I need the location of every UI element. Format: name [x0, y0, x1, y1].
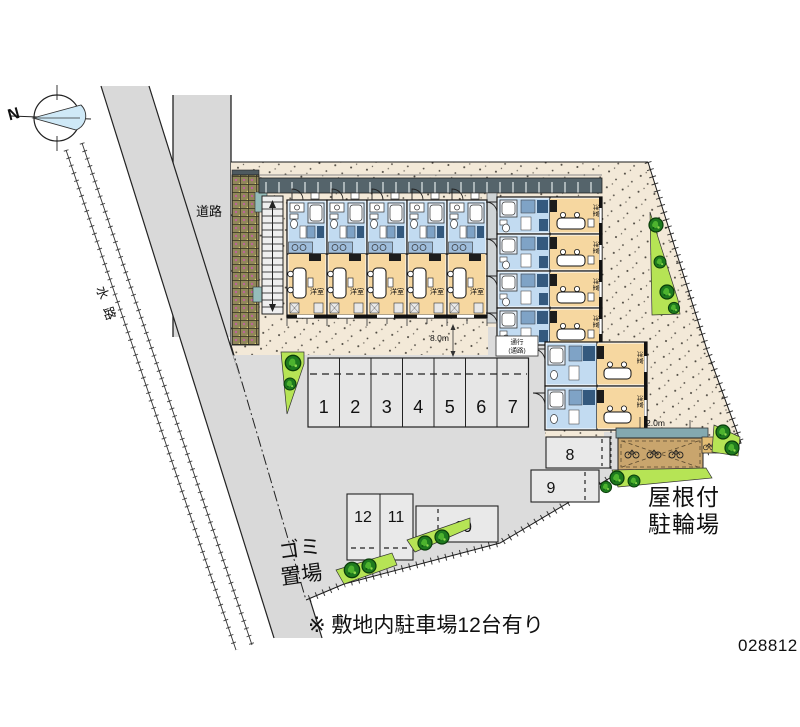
- tree-icon: [418, 536, 432, 550]
- tree-icon: [284, 378, 296, 390]
- parking-space-number: 6: [476, 397, 486, 417]
- parking-space-number: 12: [354, 509, 372, 526]
- parking-space-number: 8: [566, 447, 575, 464]
- apartment-unit: [486, 234, 602, 271]
- right-wing: 洋室 洋室 洋室 洋室: [486, 197, 602, 345]
- parking-space-number: 4: [413, 397, 423, 417]
- parking-spaces-11-12: 12 11: [347, 494, 413, 560]
- room-label: 洋室: [592, 278, 601, 292]
- bike-depth-dimension-label: 2.0m: [646, 418, 665, 428]
- parking-space-number: 3: [382, 397, 392, 417]
- parking-space-8: 8: [546, 437, 610, 468]
- room-label: 洋室: [310, 287, 324, 296]
- tree-icon: [716, 425, 730, 439]
- parking-space-number: 7: [508, 397, 518, 417]
- room-label: 洋室: [592, 241, 601, 255]
- room-label: 洋室: [592, 204, 601, 218]
- north-compass: N: [6, 85, 91, 151]
- parking-space-number: 5: [445, 397, 455, 417]
- south-wing: 洋室 洋室: [533, 342, 647, 430]
- site-plan-page: 道路 水路: [0, 0, 800, 727]
- waterway-label: 水路: [93, 284, 122, 331]
- tree-icon: [649, 218, 663, 232]
- room-label: 洋室: [636, 351, 645, 365]
- room-label: 洋室: [430, 287, 444, 296]
- tree-icon: [668, 302, 679, 313]
- apartment-unit: [486, 271, 602, 308]
- tree-icon: [362, 559, 376, 573]
- bike-shelter-label-line1: 屋根付: [648, 484, 720, 510]
- room-label: 洋室: [390, 287, 404, 296]
- apartment-unit: [447, 189, 487, 318]
- room-label: 洋室: [592, 315, 601, 329]
- left-wing: 洋室 洋室 洋室 洋室 洋室: [287, 189, 487, 326]
- tree-icon: [725, 441, 739, 455]
- parking-row: 1 2 3 4 5 6 7: [308, 358, 529, 427]
- site-note: ※ 敷地内駐車場12台有り: [308, 614, 544, 637]
- tree-icon: [600, 481, 611, 492]
- apartment-unit: [367, 189, 407, 318]
- north-corridor: [259, 178, 602, 193]
- apartment-unit: [486, 197, 602, 234]
- site-plan-drawing: 道路 水路: [0, 0, 800, 727]
- walkway-sign-line1: 通行: [511, 337, 525, 346]
- tree-icon: [660, 285, 674, 299]
- parking-space-number: 1: [319, 397, 329, 417]
- frontage-dimension-label: 8.0m: [430, 333, 449, 343]
- parking-space-number: 9: [547, 480, 556, 497]
- tree-icon: [285, 355, 300, 370]
- apartment-unit: [287, 189, 327, 318]
- bike-shelter-label-line2: 駐輪場: [648, 511, 720, 537]
- tree-icon: [344, 562, 359, 577]
- apartment-unit: [533, 386, 647, 430]
- room-label: 洋室: [350, 287, 364, 296]
- room-label: 洋室: [636, 395, 645, 409]
- tree-icon: [435, 530, 449, 544]
- tree-icon: [628, 475, 640, 487]
- stairs-icon: [262, 196, 283, 314]
- apartment-unit: [533, 342, 647, 386]
- room-label: 洋室: [470, 287, 484, 296]
- parking-space-9: 9: [531, 470, 599, 502]
- walkway-sign: 通行 (通路): [496, 336, 538, 356]
- compass-north-label: N: [6, 105, 22, 124]
- tree-icon: [654, 256, 666, 268]
- plan-number: 028812: [738, 636, 798, 655]
- parking-space-number: 2: [350, 397, 360, 417]
- tree-icon: [610, 471, 624, 485]
- apartment-unit: [327, 189, 367, 318]
- road-label: 道路: [196, 204, 222, 219]
- breezeway: [487, 193, 497, 323]
- parking-space-number: 11: [388, 509, 405, 526]
- apartment-unit: [407, 189, 447, 318]
- walkway-sign-line2: (通路): [508, 346, 525, 355]
